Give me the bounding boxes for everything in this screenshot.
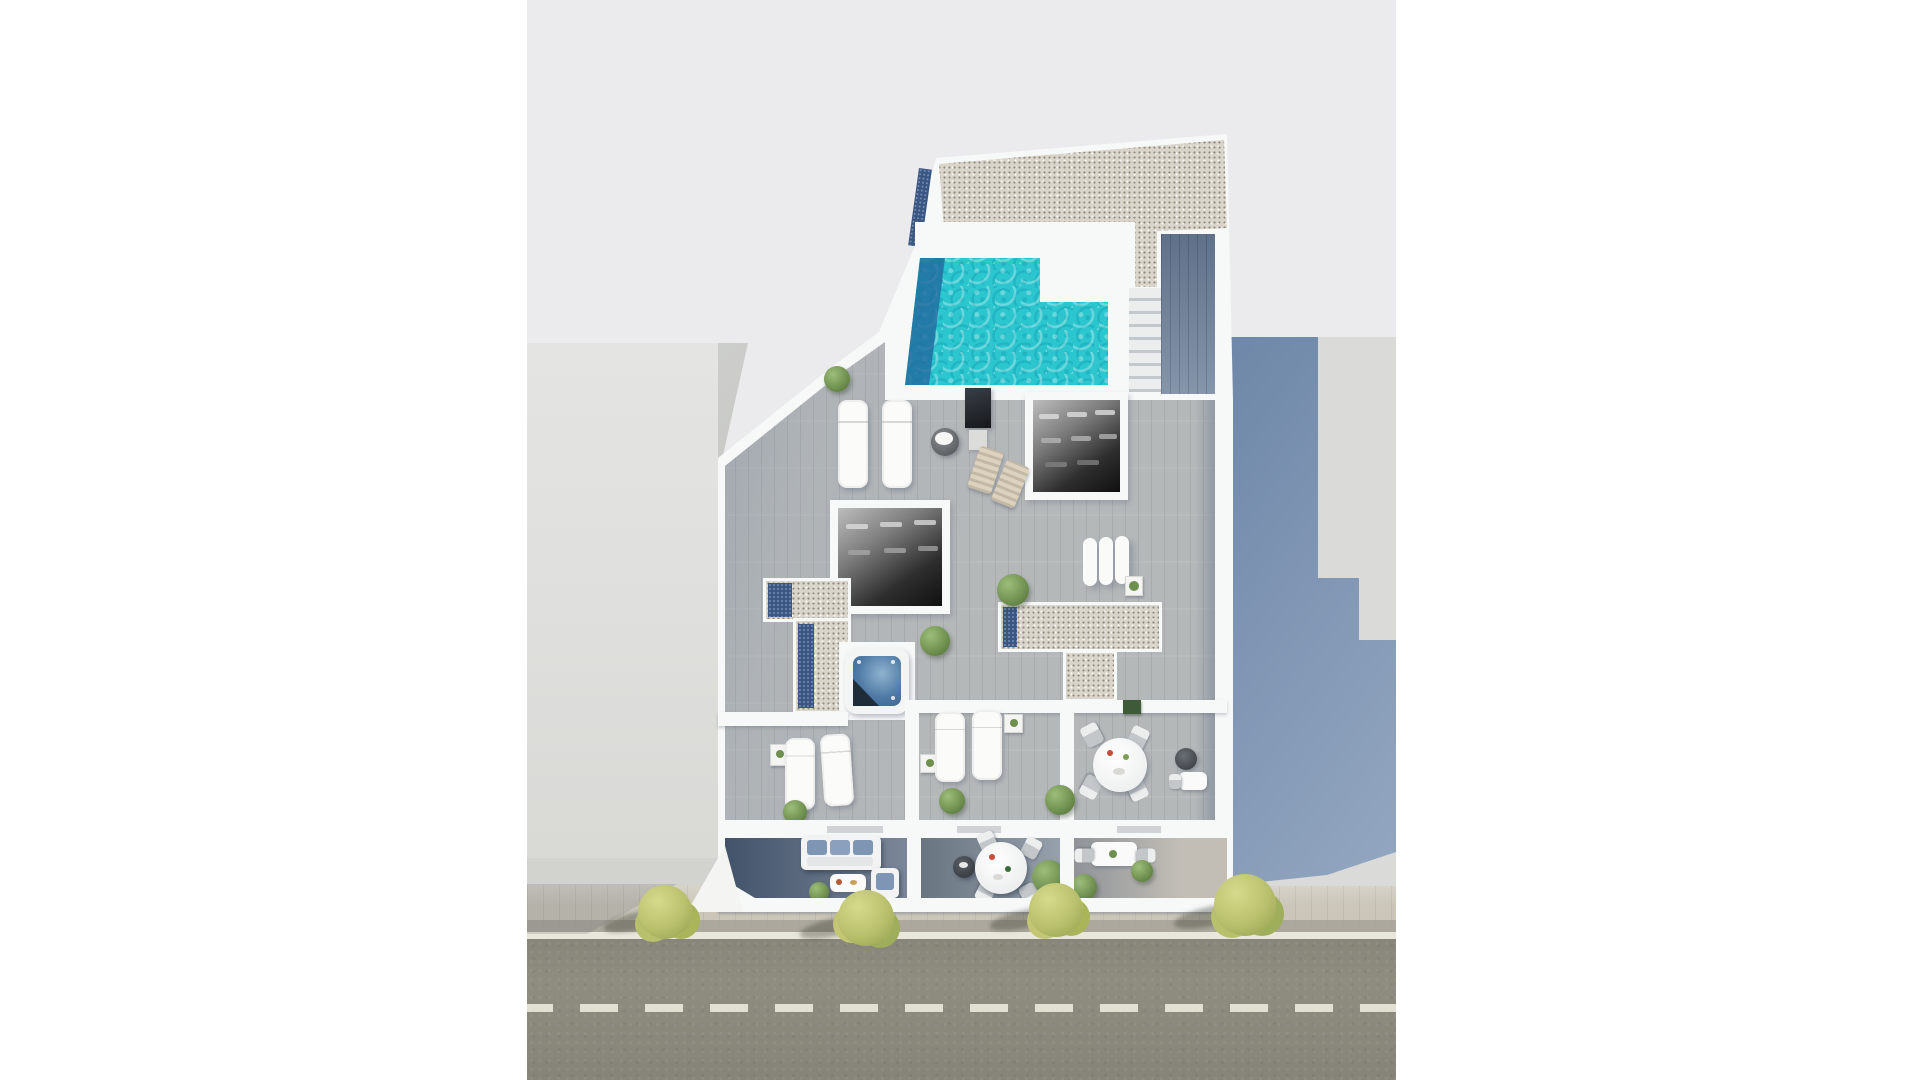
jacuzzi — [845, 648, 909, 714]
balcony-divider — [907, 820, 921, 912]
glass-door — [1117, 826, 1161, 833]
street-tree — [638, 885, 692, 939]
sun-lounger — [820, 733, 855, 807]
terrace-bush — [939, 788, 965, 814]
planter-bush — [824, 366, 850, 392]
skylight-platform-right-stem — [1063, 650, 1117, 702]
left-neighbor-building — [527, 343, 718, 885]
desk-chair — [1169, 774, 1181, 789]
roof-walkway — [1161, 234, 1215, 394]
room-a-frame — [1025, 392, 1128, 500]
sun-lounger — [972, 710, 1002, 780]
glass-door — [827, 826, 883, 833]
deck-bush — [920, 626, 950, 656]
staircase — [1129, 288, 1161, 392]
terrace-bush — [1045, 785, 1075, 815]
room-b-interior — [838, 508, 942, 606]
left-neighbor-front-face — [527, 858, 718, 885]
tv-panel — [965, 388, 991, 428]
terrace-divider — [905, 700, 919, 834]
street-tree — [1214, 874, 1276, 936]
room-a-interior — [1033, 400, 1120, 492]
balcony-front-parapet — [718, 898, 1227, 912]
hedge-box — [1123, 700, 1141, 714]
aerial-render — [527, 0, 1396, 1080]
skylight-strip — [1003, 607, 1017, 647]
skylight-strip — [768, 583, 792, 617]
street-tree — [838, 890, 894, 946]
right-neighbor-ground — [1222, 337, 1396, 886]
rect-table — [1091, 842, 1137, 866]
glass-door — [957, 826, 1001, 833]
skylight-platform-right-bar — [998, 602, 1162, 652]
towel-pouf — [931, 428, 959, 456]
small-desk — [1179, 772, 1207, 790]
deck-right-edge-shadow — [1195, 400, 1215, 822]
terrace-wall — [718, 712, 848, 726]
round-dining-table — [1093, 738, 1147, 792]
sun-lounger — [838, 400, 868, 488]
sun-lounger — [882, 400, 912, 488]
terrace-wall — [1073, 700, 1227, 713]
side-table — [1004, 714, 1023, 733]
street-tree — [1029, 883, 1083, 937]
chair — [1075, 849, 1094, 863]
road-center-dashed-line — [527, 1004, 1396, 1012]
skylight-strip — [798, 624, 814, 708]
sun-lounger — [935, 712, 965, 782]
round-side-table — [953, 856, 975, 878]
building-cast-shadow — [1222, 337, 1396, 886]
coffee-table — [830, 874, 866, 892]
round-side-table — [1175, 748, 1197, 770]
sofa — [801, 836, 881, 870]
round-dining-table — [975, 842, 1027, 894]
deck-bush — [997, 574, 1029, 606]
render-canvas — [0, 0, 1920, 1080]
balcony-shrub — [1131, 860, 1153, 882]
sun-lounger — [785, 738, 815, 810]
planter-box — [1125, 576, 1143, 596]
